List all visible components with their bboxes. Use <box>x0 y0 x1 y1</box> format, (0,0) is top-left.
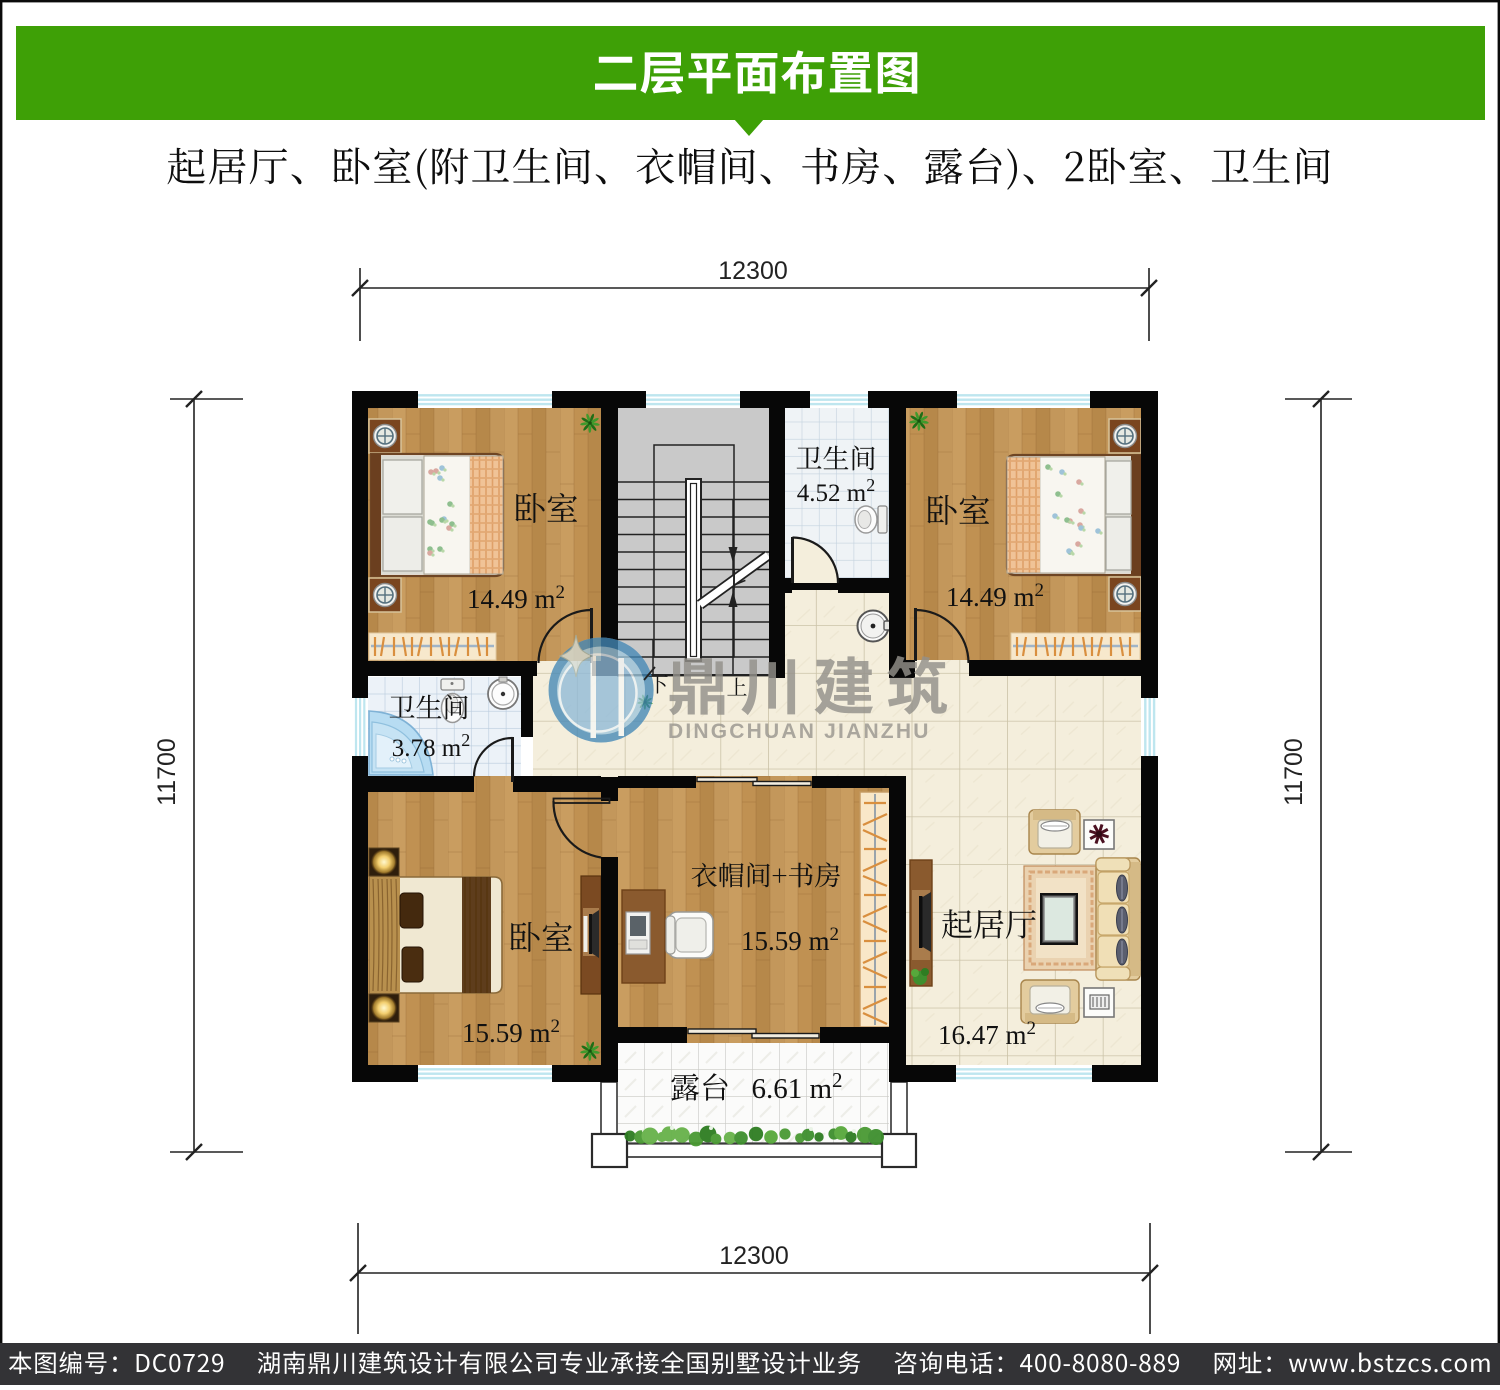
svg-text:16.47 m2: 16.47 m2 <box>938 1018 1036 1050</box>
svg-text:15.59 m2: 15.59 m2 <box>741 924 839 956</box>
svg-text:3.78 m2: 3.78 m2 <box>392 730 470 762</box>
svg-text:14.49 m2: 14.49 m2 <box>946 580 1044 612</box>
svg-text:14.49 m2: 14.49 m2 <box>467 582 565 614</box>
svg-text:DINGCHUAN JIANZHU: DINGCHUAN JIANZHU <box>668 720 931 743</box>
svg-text:12300: 12300 <box>718 257 788 285</box>
svg-text:15.59 m2: 15.59 m2 <box>462 1016 560 1048</box>
svg-text:12300: 12300 <box>719 1242 789 1270</box>
svg-text:6.61 m2: 6.61 m2 <box>751 1068 842 1105</box>
svg-text:11700: 11700 <box>153 738 181 806</box>
svg-text:4.52 m2: 4.52 m2 <box>797 475 875 507</box>
svg-text:11700: 11700 <box>1280 738 1308 806</box>
